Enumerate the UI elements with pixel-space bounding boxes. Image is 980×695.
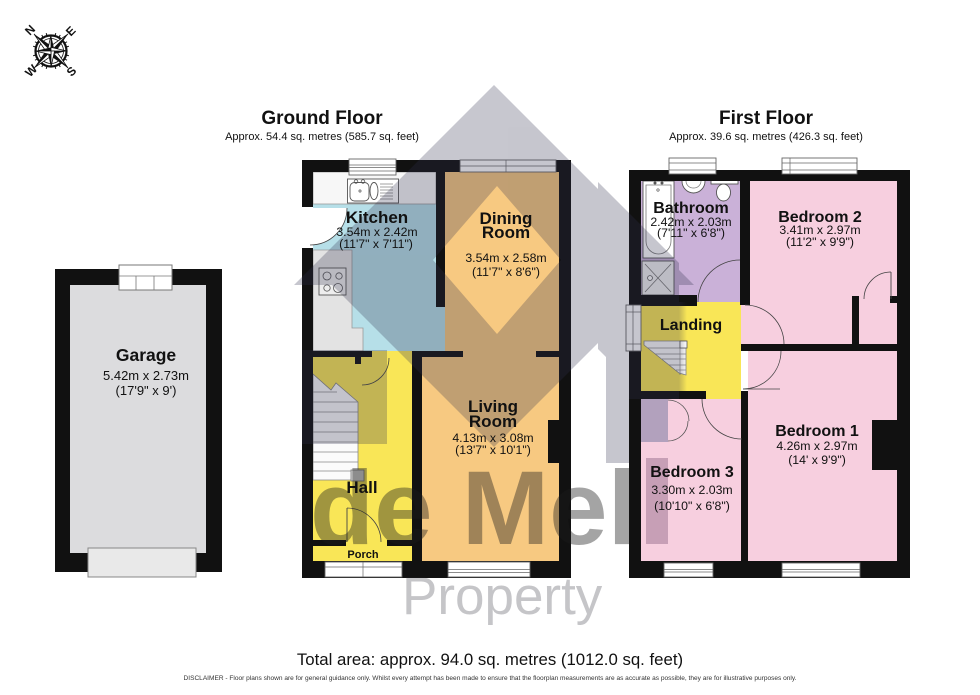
svg-text:3.30m x 2.03m: 3.30m x 2.03m [651, 483, 732, 497]
svg-text:Room: Room [482, 223, 530, 242]
svg-text:DISCLAIMER - Floor plans show: DISCLAIMER - Floor plans shown are for g… [184, 675, 797, 682]
svg-text:3.54m x 2.58m: 3.54m x 2.58m [465, 251, 546, 265]
svg-text:Room: Room [469, 412, 517, 431]
svg-text:Approx. 54.4 sq. metres (585.7: Approx. 54.4 sq. metres (585.7 sq. feet) [225, 131, 419, 143]
svg-text:Bedroom 1: Bedroom 1 [775, 423, 859, 440]
svg-text:Ground Floor: Ground Floor [261, 108, 383, 129]
svg-text:First Floor: First Floor [719, 108, 814, 129]
svg-text:5.42m x 2.73m: 5.42m x 2.73m [103, 368, 189, 383]
svg-text:Landing: Landing [660, 317, 722, 334]
svg-text:(17'9" x 9'): (17'9" x 9') [116, 383, 177, 398]
svg-text:(10'10" x 6'8"): (10'10" x 6'8") [654, 499, 730, 513]
svg-text:Hall: Hall [346, 478, 377, 497]
svg-text:Porch: Porch [347, 549, 378, 561]
svg-text:4.26m x 2.97m: 4.26m x 2.97m [776, 439, 857, 453]
svg-text:(11'2" x 9'9"): (11'2" x 9'9") [786, 235, 854, 249]
svg-text:(7'11" x 6'8"): (7'11" x 6'8") [657, 226, 725, 240]
svg-text:(13'7" x 10'1"): (13'7" x 10'1") [455, 443, 531, 457]
svg-text:(11'7" x 7'11"): (11'7" x 7'11") [339, 237, 413, 251]
svg-text:Garage: Garage [116, 345, 177, 365]
svg-text:Property: Property [402, 567, 603, 626]
svg-text:(11'7" x 8'6"): (11'7" x 8'6") [472, 265, 540, 279]
svg-text:(14' x 9'9"): (14' x 9'9") [788, 453, 846, 467]
svg-text:Bedroom 3: Bedroom 3 [650, 464, 734, 481]
svg-text:Total area: approx. 94.0 sq. m: Total area: approx. 94.0 sq. metres (101… [297, 650, 683, 669]
svg-text:Approx. 39.6 sq. metres (426.3: Approx. 39.6 sq. metres (426.3 sq. feet) [669, 131, 863, 143]
